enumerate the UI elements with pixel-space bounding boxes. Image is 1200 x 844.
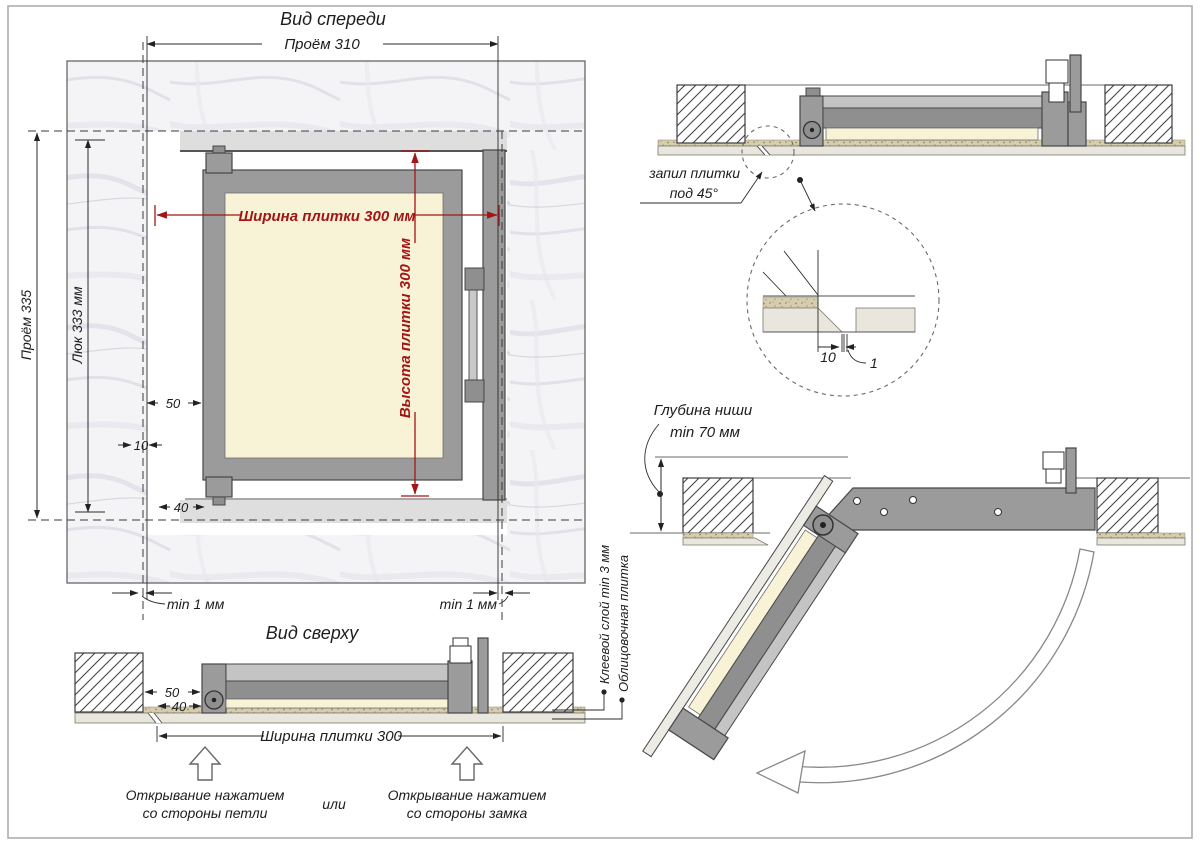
up-arrow-icon (190, 747, 220, 780)
front-view-title: Вид спереди (280, 9, 386, 29)
latch-strike-plate (1070, 55, 1081, 112)
detail-circle: 10 1 (747, 204, 939, 396)
dim-gap-right: min 1 мм (440, 593, 530, 612)
latch-bolt-head (1043, 452, 1064, 469)
door-tile-edge (856, 308, 915, 332)
tile-layer (683, 538, 768, 545)
top-view: Вид сверху 50 (75, 545, 631, 821)
frame-assembly-top-view (202, 638, 488, 713)
open-section-view: Глубина ниши min 70 мм (630, 402, 1190, 793)
screw-hole (854, 498, 861, 505)
dim-tile-width-label: Ширина плитки 300 мм (238, 208, 415, 225)
hatch-drawing: Вид спереди (0, 0, 1200, 844)
open-hinge-line2: со стороны петли (143, 805, 268, 821)
detail-pointer (797, 177, 815, 211)
frame-bar-open (815, 448, 1095, 530)
wall-block-left (683, 478, 753, 533)
adhesive-layer (683, 533, 753, 538)
open-latch-line2: со стороны замка (407, 805, 528, 821)
tile-layer (658, 146, 1185, 155)
dim-gap-left-label: min 1 мм (167, 596, 225, 612)
open-latch-line1: Открывание нажатием (388, 787, 547, 803)
screw-hole (910, 497, 917, 504)
dim-50-front-label: 50 (166, 396, 181, 411)
closed-section-view: запил плитки под 45° 10 (640, 55, 1185, 396)
dim-opening-height: Проём 335 (18, 133, 37, 518)
detail-dim-1-label: 1 (870, 355, 878, 371)
open-hinge-caption: Открывание нажатием со стороны петли (126, 747, 285, 821)
latch-end-piece (448, 661, 472, 713)
dim-50-top: 50 (145, 685, 200, 700)
dim-10-front-label: 10 (134, 438, 149, 453)
adhesive-label: Клеевой слой min 3 мм (597, 545, 612, 684)
wall-tile-cut (763, 308, 842, 332)
latch-strike-plate (478, 638, 488, 713)
wall-block-right (1105, 85, 1172, 143)
tile-cut-label: запил плитки под 45° (640, 165, 762, 203)
dim-tile-height-label: Высота плитки 300 мм (397, 238, 414, 418)
latch-bolt-head (1046, 60, 1068, 83)
drawing-page: Вид спереди (0, 0, 1200, 844)
dim-40-front-label: 40 (174, 500, 189, 515)
dim-40-top-label: 40 (172, 699, 187, 714)
wall-block-left (75, 653, 143, 712)
dim-tile-width-top: Ширина плитки 300 (157, 726, 503, 745)
latch-bolt-head (450, 646, 471, 663)
wall-block-right (1097, 478, 1158, 533)
niche-depth-line2: min 70 мм (670, 424, 740, 441)
open-hinge-line1: Открывание нажатием (126, 787, 285, 803)
up-arrow-icon (452, 747, 482, 780)
tile-cut-line2: под 45° (670, 185, 719, 201)
dim-hatch-height-label: Люк 333 мм (69, 286, 85, 364)
adhesive-layer (1097, 533, 1185, 538)
niche-top-band (180, 131, 507, 150)
niche-depth-line1: Глубина ниши (654, 402, 753, 419)
latch-strike-plate (1066, 448, 1076, 493)
dim-50-top-label: 50 (165, 685, 180, 700)
dim-gap-right-label: min 1 мм (440, 596, 498, 612)
dim-gap-left: min 1 мм (112, 593, 225, 612)
dim-opening-width-label: Проём 310 (284, 36, 360, 53)
frame-assembly-closed (800, 55, 1086, 146)
detail-dim-10-label: 10 (820, 349, 836, 365)
dim-opening-height-label: Проём 335 (18, 290, 34, 361)
tile-label: Облицовочная плитка (616, 555, 631, 692)
screw-hole (881, 509, 888, 516)
screw-hole (995, 509, 1002, 516)
wall-block-left (677, 85, 745, 143)
detail-dim-1: 1 (848, 350, 878, 371)
front-view: Вид спереди (18, 9, 585, 620)
wall-block-right (503, 653, 573, 712)
tile-layer (1097, 538, 1185, 545)
top-view-title: Вид сверху (266, 623, 359, 643)
open-latch-caption: Открывание нажатием со стороны замка (388, 747, 547, 821)
dim-tile-width-top-label: Ширина плитки 300 (260, 728, 402, 745)
adhesive-layer (763, 297, 818, 308)
or-label: или (322, 796, 346, 812)
tile-cut-line1: запил плитки (648, 165, 740, 181)
